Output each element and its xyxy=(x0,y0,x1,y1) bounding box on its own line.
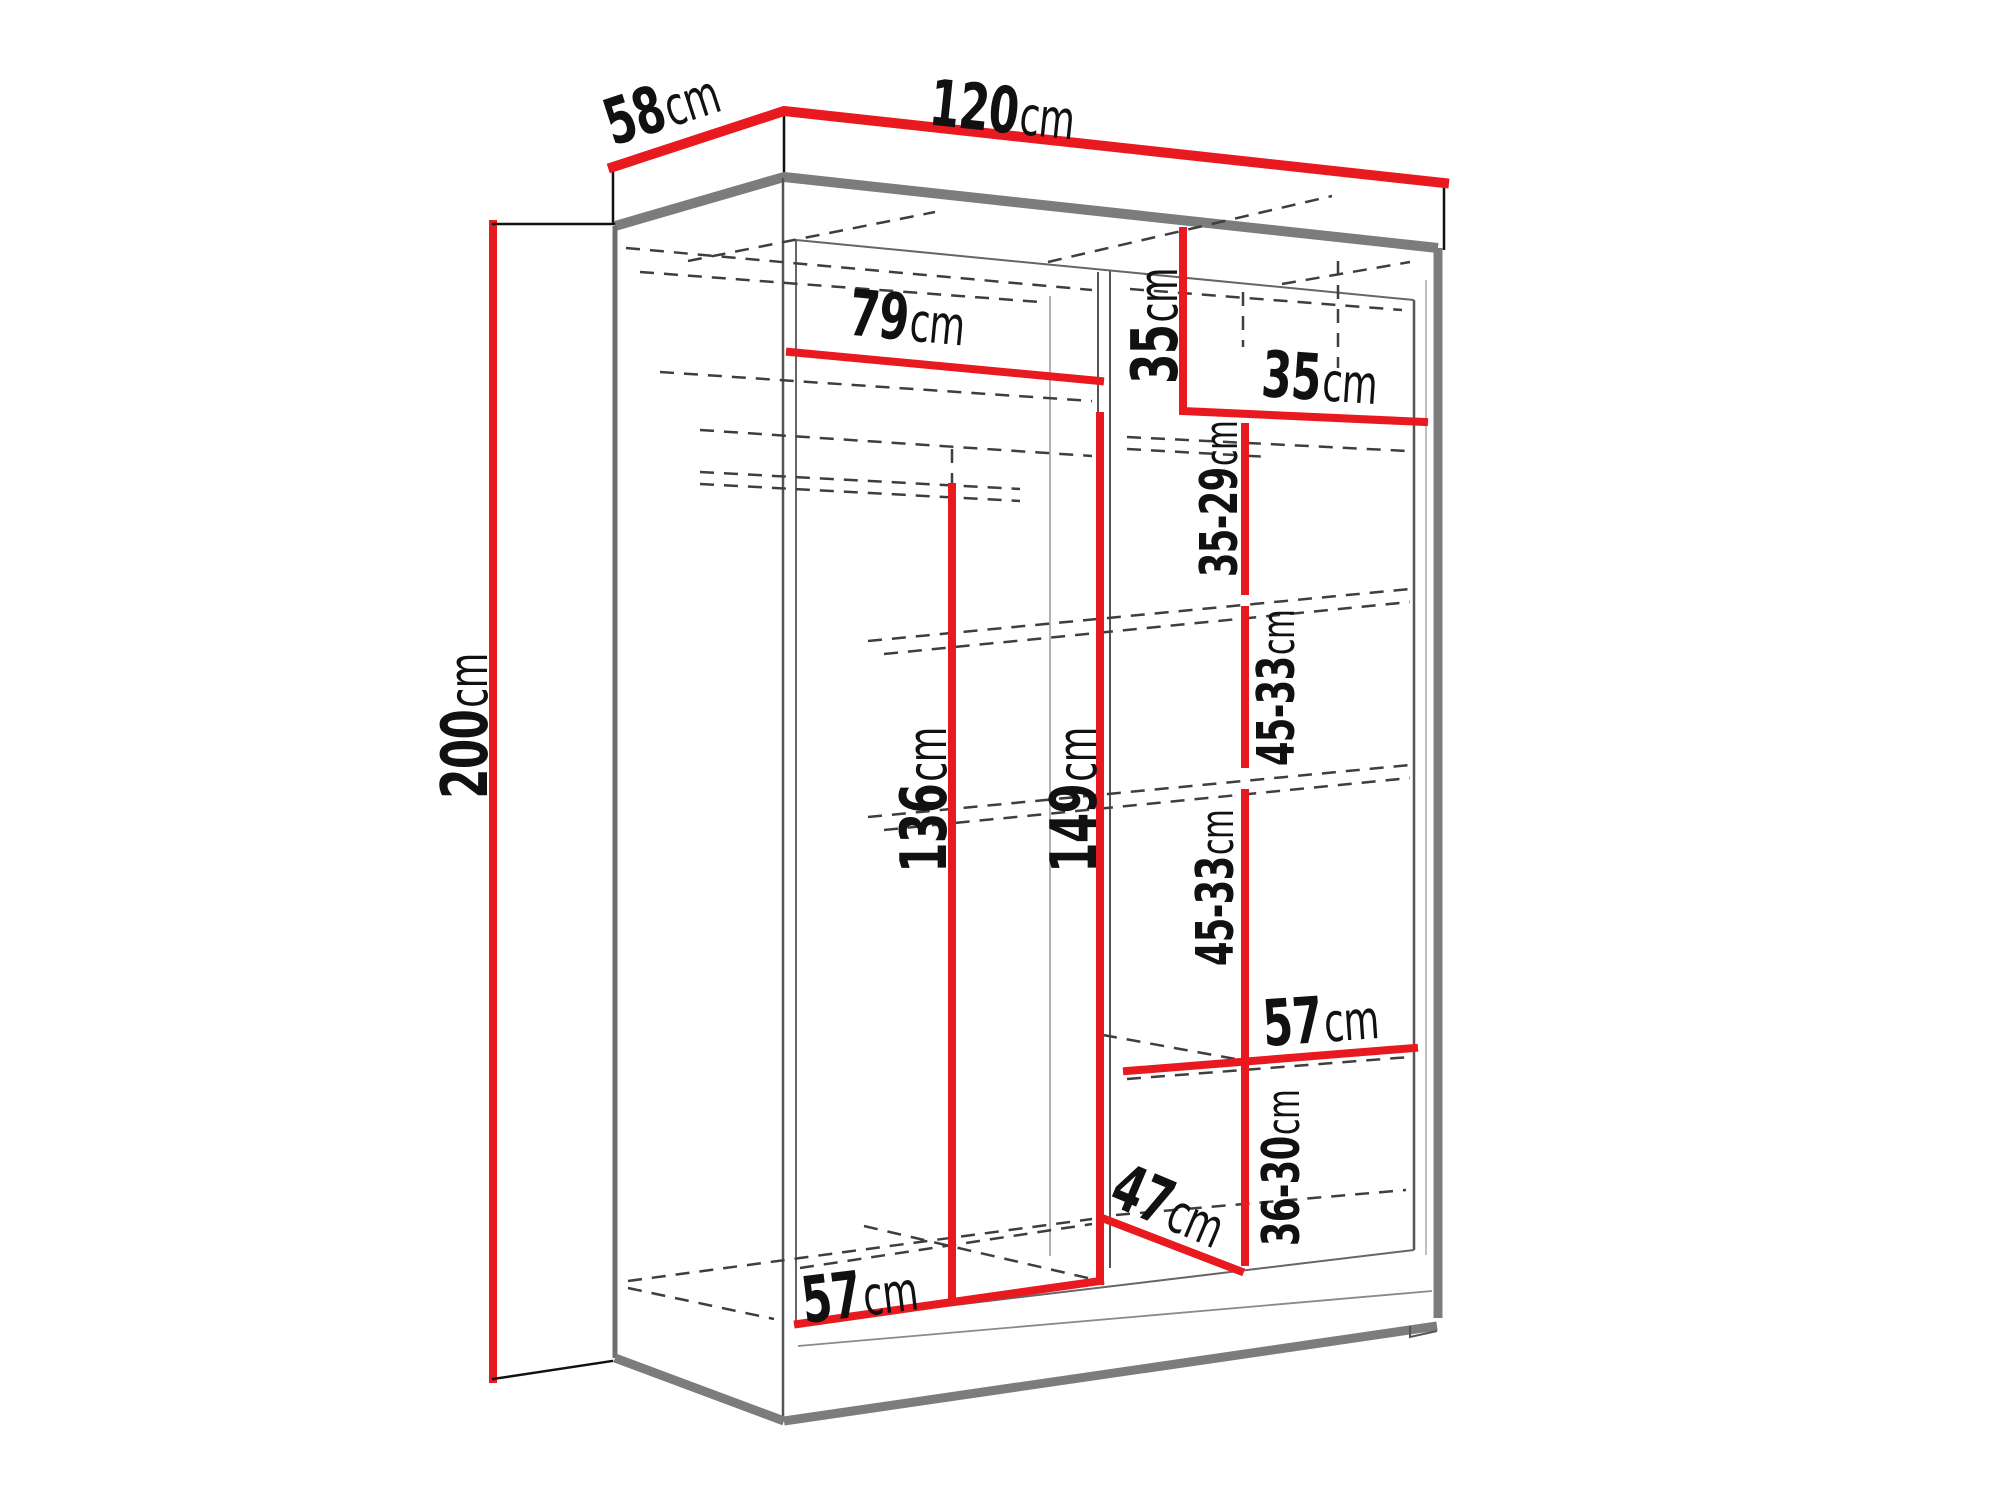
dim-label-depth-58: 58cm xyxy=(594,53,727,160)
dim-label-height-149: 149cm xyxy=(1036,727,1111,872)
shelf-dashed-line xyxy=(884,602,1410,654)
shelf-dashed-line xyxy=(700,430,1092,456)
dim-extension-bottom xyxy=(493,1361,612,1379)
interior-dashed-line xyxy=(688,212,935,261)
diagram-canvas: 58cm 120cm 200cm 79cm 35cm 35cm 35-29cm … xyxy=(0,0,2000,1500)
top-front-edge xyxy=(615,177,1438,248)
floor-dashed-line xyxy=(628,1288,774,1319)
dim-label-top-height-35: 35cm xyxy=(1117,268,1192,384)
dim-label-bottom-57: 57cm xyxy=(797,1250,921,1338)
dim-label-gap-35-29: 35-29cm xyxy=(1190,421,1250,577)
dim-label-height-136: 136cm xyxy=(886,727,961,872)
dim-label-gap-45-33-b: 45-33cm xyxy=(1186,810,1246,966)
dim-label-top-width-35: 35cm xyxy=(1259,336,1380,419)
bottom-left-edge xyxy=(615,1358,784,1421)
shelf-dashed-line xyxy=(884,778,1410,830)
interior-dashed-line xyxy=(1282,262,1410,284)
dim-label-gap-36-30: 36-30cm xyxy=(1252,1090,1312,1246)
dim-label-shelf-57: 57cm xyxy=(1260,978,1381,1061)
dim-label-height-200: 200cm xyxy=(427,653,502,798)
shelf-dashed-line xyxy=(1103,1035,1252,1062)
dim-label-width-79: 79cm xyxy=(846,275,968,361)
bottom-front-edge xyxy=(784,1326,1437,1421)
dim-label-gap-45-33-a: 45-33cm xyxy=(1247,610,1307,766)
dim-label-width-120: 120cm xyxy=(926,65,1078,155)
interior-dashed-line xyxy=(640,272,1040,302)
wardrobe-carcass xyxy=(613,111,1444,1421)
shelf-dashed-line xyxy=(1127,437,1408,451)
dimension-labels: 58cm 120cm 200cm 79cm 35cm 35cm 35-29cm … xyxy=(427,53,1380,1338)
wardrobe-dimension-diagram: 58cm 120cm 200cm 79cm 35cm 35cm 35-29cm … xyxy=(0,0,2000,1500)
